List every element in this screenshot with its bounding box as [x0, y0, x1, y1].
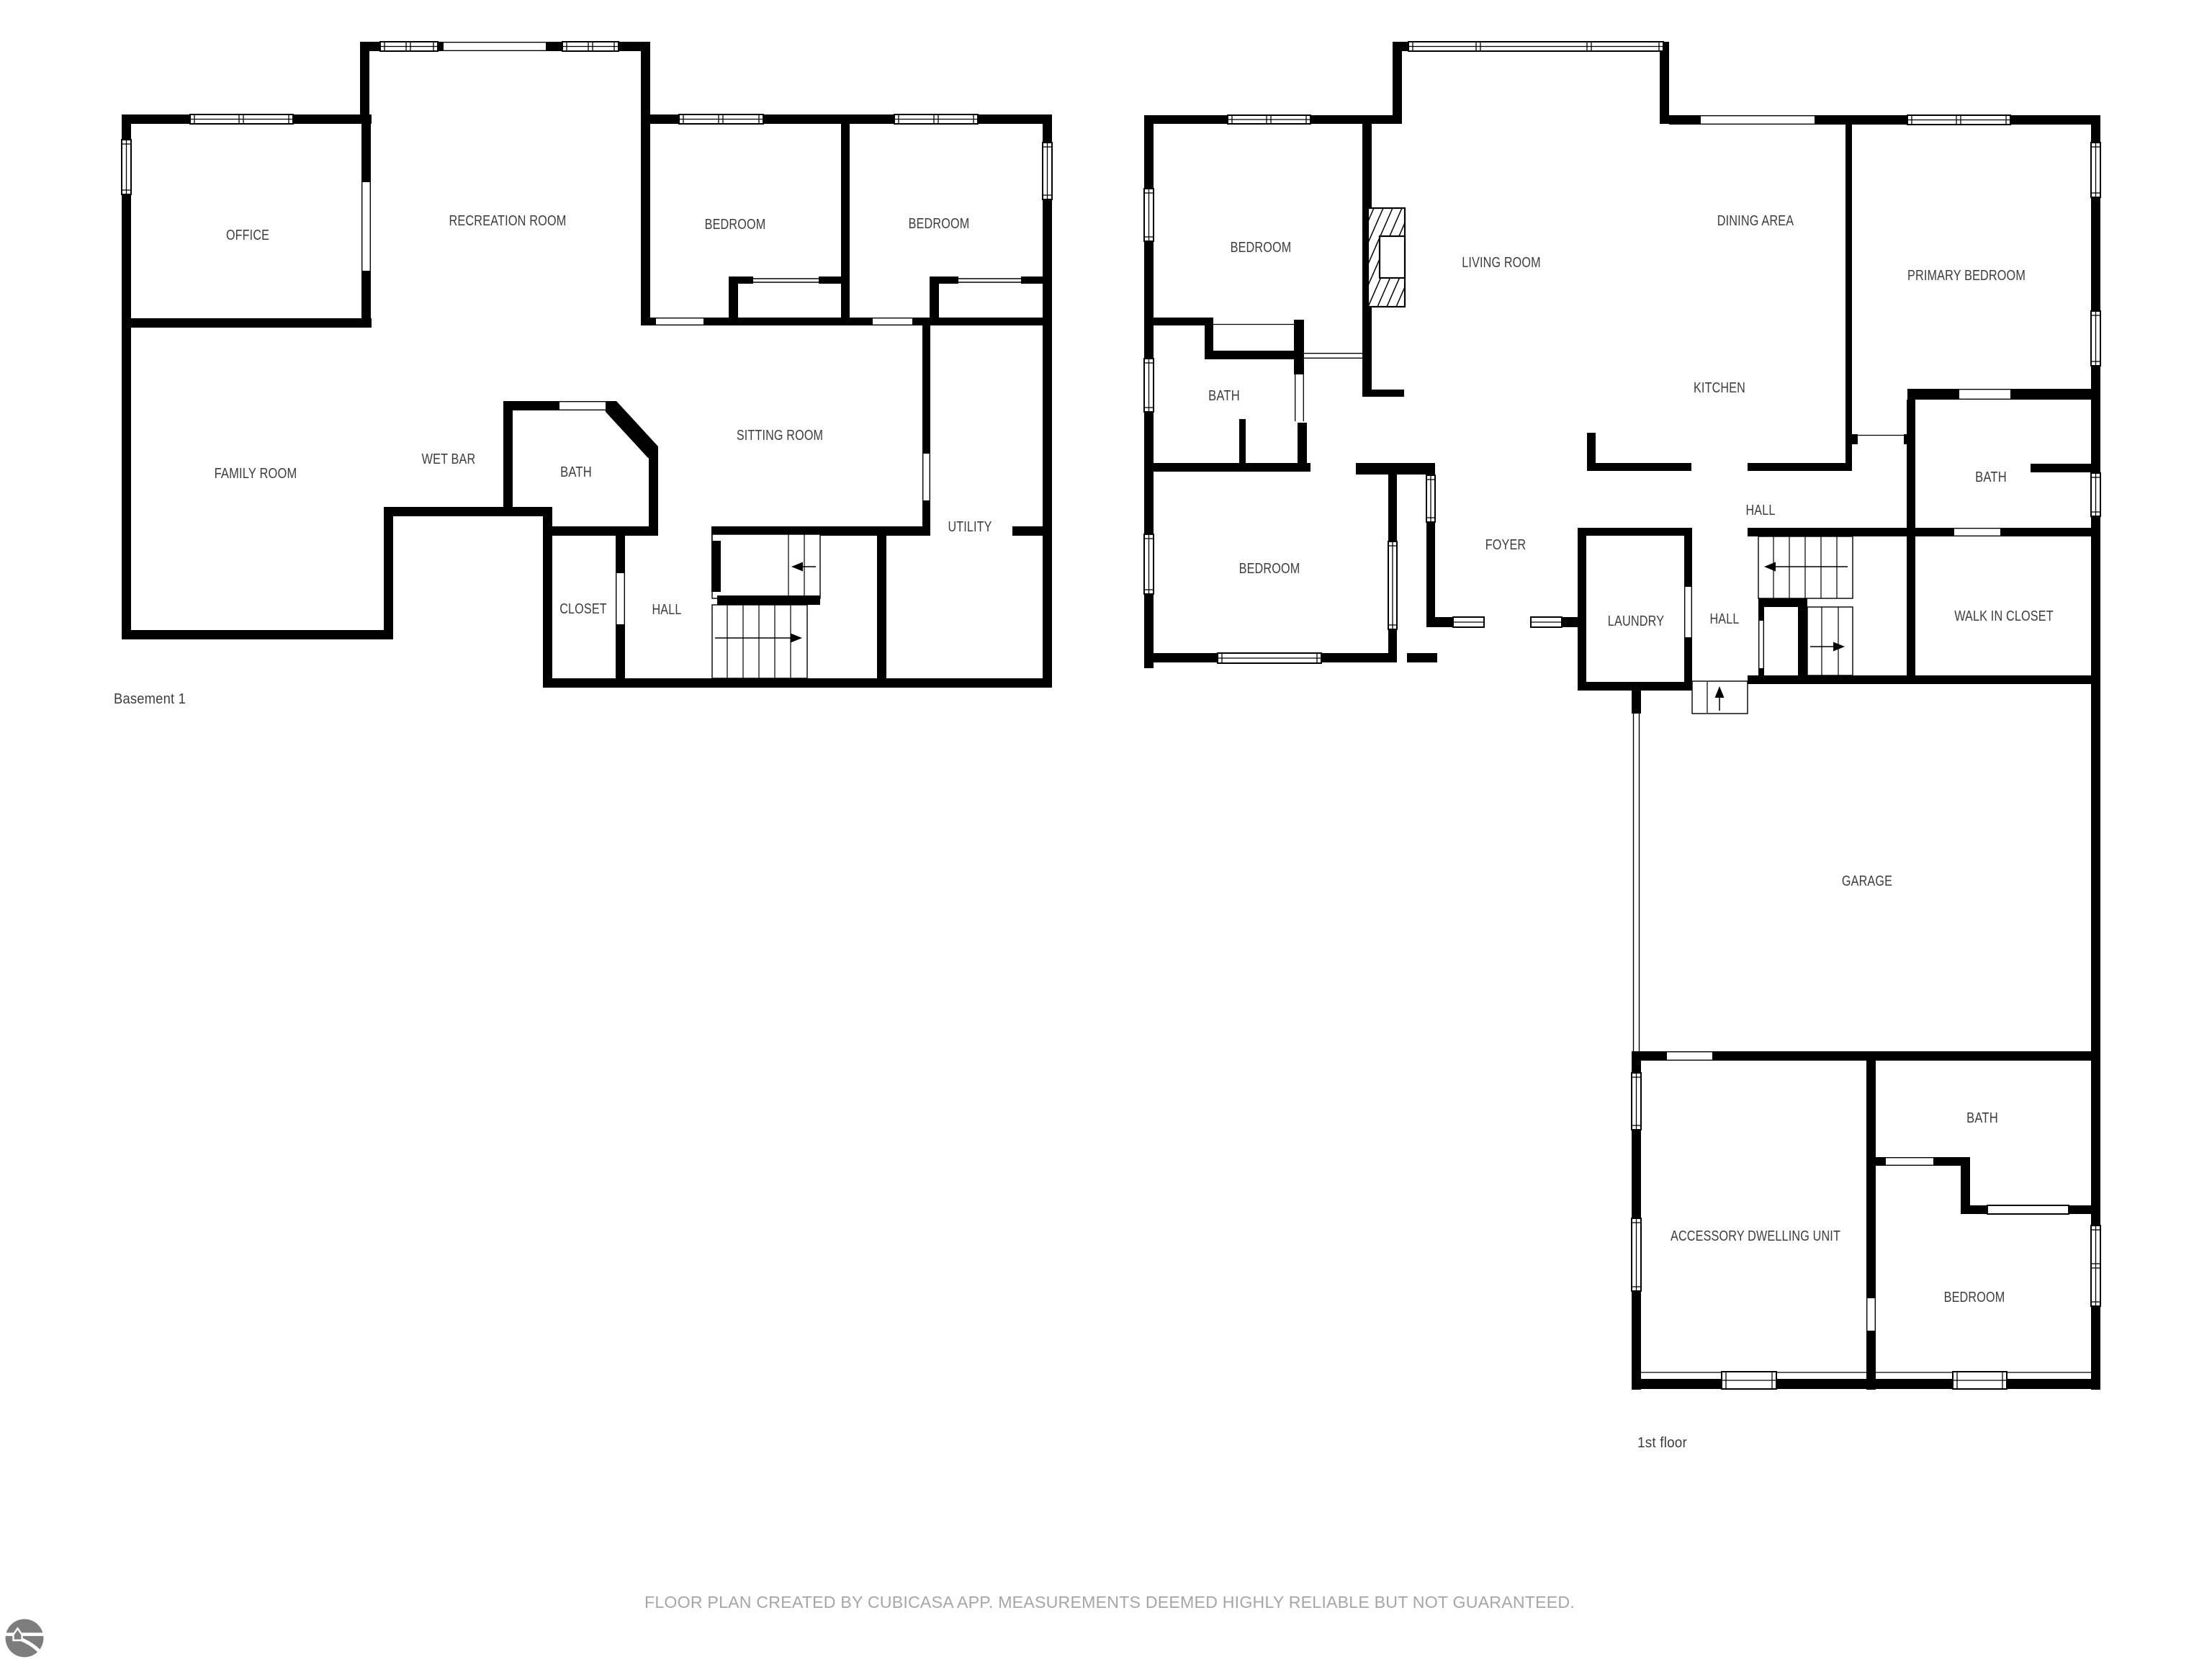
svg-text:WET BAR: WET BAR [422, 451, 476, 467]
svg-text:DINING AREA: DINING AREA [1717, 213, 1794, 229]
svg-text:Basement 1: Basement 1 [114, 691, 186, 707]
svg-text:BATH: BATH [560, 464, 592, 480]
svg-text:OFFICE: OFFICE [226, 228, 269, 243]
svg-text:HALL: HALL [652, 602, 682, 618]
svg-text:BEDROOM: BEDROOM [1231, 240, 1292, 256]
svg-text:ACCESSORY DWELLING UNIT: ACCESSORY DWELLING UNIT [1671, 1228, 1840, 1244]
svg-text:SITTING ROOM: SITTING ROOM [737, 428, 823, 444]
svg-text:GARAGE: GARAGE [1842, 873, 1892, 889]
svg-text:BATH: BATH [1975, 469, 2007, 485]
svg-text:BEDROOM: BEDROOM [1944, 1290, 2005, 1305]
svg-text:1st floor: 1st floor [1637, 1435, 1687, 1451]
svg-text:HALL: HALL [1710, 611, 1740, 627]
svg-text:FAMILY ROOM: FAMILY ROOM [215, 466, 297, 482]
svg-text:RECREATION ROOM: RECREATION ROOM [449, 213, 566, 229]
svg-text:BATH: BATH [1966, 1110, 1998, 1126]
svg-text:LIVING ROOM: LIVING ROOM [1462, 255, 1540, 271]
svg-text:BEDROOM: BEDROOM [909, 216, 970, 232]
svg-text:LAUNDRY: LAUNDRY [1608, 613, 1664, 629]
svg-text:PRIMARY BEDROOM: PRIMARY BEDROOM [1907, 268, 2026, 284]
svg-text:BATH: BATH [1208, 388, 1240, 404]
svg-text:FOYER: FOYER [1485, 537, 1527, 553]
svg-text:FLOOR PLAN CREATED BY CUBICASA: FLOOR PLAN CREATED BY CUBICASA APP. MEAS… [644, 1593, 1575, 1611]
svg-text:HALL: HALL [1746, 503, 1776, 518]
svg-text:WALK IN CLOSET: WALK IN CLOSET [1954, 608, 2054, 624]
svg-text:BEDROOM: BEDROOM [705, 217, 766, 233]
svg-text:UTILITY: UTILITY [948, 519, 992, 535]
svg-text:CLOSET: CLOSET [559, 601, 607, 617]
svg-text:KITCHEN: KITCHEN [1694, 380, 1745, 396]
svg-text:BEDROOM: BEDROOM [1239, 561, 1300, 577]
